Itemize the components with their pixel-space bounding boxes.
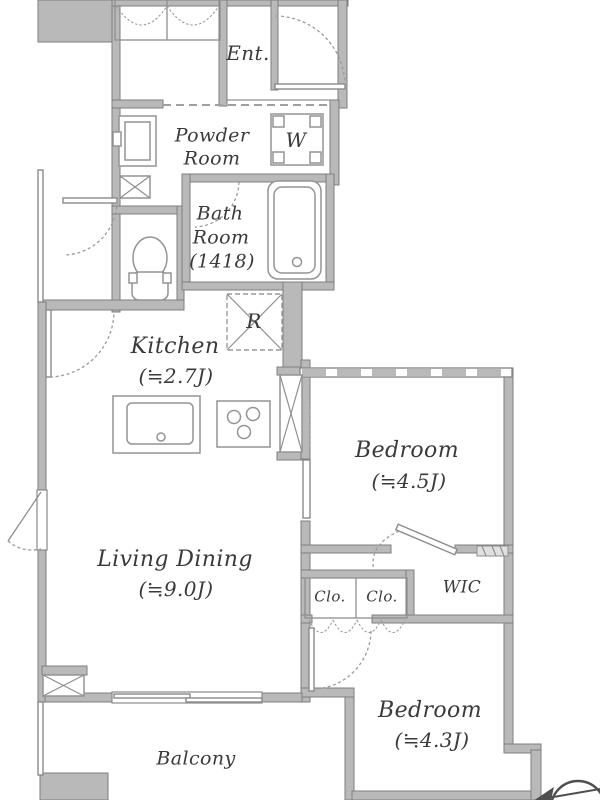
- toilet-door-arc: [63, 198, 117, 255]
- label-bath-size: (1418): [189, 253, 255, 272]
- label-kitchen-name: Kitchen: [131, 336, 220, 358]
- pipe-shaft-icon: [280, 375, 302, 452]
- compass-icon: [533, 781, 600, 800]
- stove-icon: [217, 401, 270, 447]
- label-washer: W: [286, 130, 307, 150]
- kitchen-sink-icon: [113, 396, 200, 453]
- bathtub-icon: [268, 181, 321, 279]
- entrance-door-arc: [275, 16, 345, 89]
- label-kitchen-size: (≒2.7J): [139, 366, 214, 386]
- label-balcony: Balcony: [156, 750, 235, 769]
- label-bath-line1: Bath: [197, 205, 244, 224]
- label-living-dining-size: (≒9.0J): [139, 579, 214, 599]
- floorplan-drawing: [0, 0, 600, 800]
- kitchen-door-arc: [46, 310, 114, 377]
- wic-shelf-icon: [477, 546, 508, 556]
- dashed-wall: [300, 368, 512, 377]
- toilet-icon: [129, 237, 171, 300]
- pipe-shaft-icon: [43, 675, 84, 696]
- label-entrance: Ent.: [226, 43, 269, 63]
- label-powder-line2: Room: [184, 150, 241, 169]
- label-bedroom-south: Bedroom: [378, 700, 482, 722]
- label-bath-line2: Room: [193, 229, 250, 248]
- bedroom-south-door-arc: [309, 628, 371, 691]
- pipe-shaft-icon: [120, 176, 150, 198]
- washbasin-icon: [113, 116, 156, 166]
- side-window: [8, 490, 47, 550]
- label-wic: WIC: [443, 580, 481, 597]
- label-bedroom-south-size: (≒4.3J): [395, 730, 470, 750]
- label-powder-line1: Powder: [175, 127, 250, 146]
- floorplan-canvas: Ent. Powder Room W Bath Room (1418) R Ki…: [0, 0, 600, 800]
- label-closet-left: Clo.: [314, 590, 345, 605]
- label-closet-right: Clo.: [366, 590, 397, 605]
- label-living-dining: Living Dining: [97, 549, 253, 571]
- label-bedroom-east: Bedroom: [355, 440, 459, 462]
- label-fridge: R: [246, 311, 261, 331]
- balcony-sliding-window: [112, 692, 262, 703]
- label-bedroom-east-size: (≒4.5J): [372, 471, 447, 491]
